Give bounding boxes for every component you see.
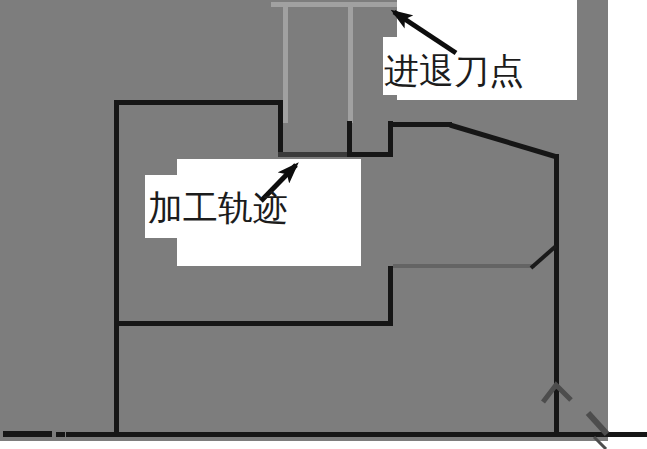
contour-top-chamfer <box>450 125 557 157</box>
contour-right-vertical <box>554 154 559 437</box>
contour-mid-horizontal <box>347 152 393 157</box>
entry-exit-point-label: 进退刀点 <box>384 53 524 92</box>
centerline-dot <box>56 432 65 437</box>
contour-top-horizontal <box>114 100 283 105</box>
contour-inner-bottom-horizontal <box>114 321 393 326</box>
axis-slash-icon <box>588 413 607 434</box>
contour-inner-right-vertical <box>388 266 393 326</box>
centerline-axis <box>66 432 647 437</box>
machining-path-label: 加工轨迹 <box>148 190 288 229</box>
contour-left-vertical <box>114 100 119 437</box>
secondary-pass-line <box>393 264 535 268</box>
page-margin-bottom <box>0 441 647 449</box>
entry-exit-path-vertical-left <box>283 2 288 123</box>
contour-groove-left-wall <box>278 100 283 157</box>
entry-exit-path-top <box>271 2 399 7</box>
page-margin-right <box>608 0 647 449</box>
contour-groove-bottom <box>278 152 352 157</box>
machining-diagram-canvas: 进退刀点 加工轨迹 <box>0 0 647 449</box>
contour-boss-top-horizontal <box>388 122 452 127</box>
centerline-dash <box>3 431 52 437</box>
entry-exit-path-vertical-right <box>348 2 353 123</box>
